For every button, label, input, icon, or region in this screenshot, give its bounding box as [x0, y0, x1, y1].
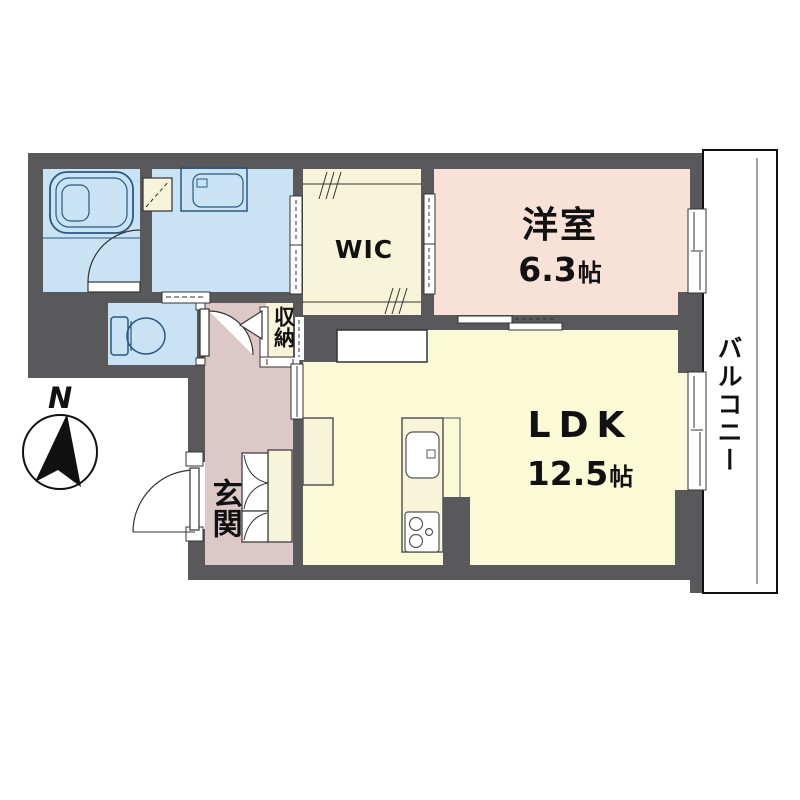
washer-space — [143, 178, 172, 211]
ldk-doorway — [291, 364, 303, 419]
entrance-label: 玄関 — [207, 478, 241, 538]
entrance-door — [133, 452, 203, 541]
washroom-wic-door — [290, 196, 302, 294]
kitchen-cabinet — [303, 418, 333, 485]
north-arrow-icon — [23, 414, 97, 489]
ldk-label: LDK — [490, 406, 670, 446]
gas-stove — [405, 512, 439, 552]
storage-label: 収納 — [271, 306, 295, 348]
western-room-size-unit: 帖 — [578, 260, 602, 287]
floor-plan: WIC 洋室 6.3帖 LDK 12.5帖 バルコニー 玄関 収納 N — [0, 0, 800, 800]
ldk-room — [303, 330, 690, 565]
washroom-sliding-door — [162, 292, 210, 303]
kitchen-sink — [406, 432, 439, 478]
kitchen-counter — [402, 418, 443, 552]
ldk-alcove — [337, 330, 427, 362]
ldk-size-unit: 帖 — [609, 464, 633, 491]
ldk-size-value: 12.5 — [527, 456, 608, 493]
western-room-window — [688, 209, 706, 293]
shoe-cabinet — [242, 450, 292, 542]
western-room-size-value: 6.3 — [518, 252, 576, 289]
balcony-label: バルコニー — [714, 335, 742, 475]
ldk-window — [688, 372, 706, 490]
western-room-size: 6.3帖 — [470, 252, 650, 289]
wic-label: WIC — [314, 236, 414, 264]
wic-western-door — [424, 194, 435, 294]
washroom — [152, 169, 293, 292]
western-room-label: 洋室 — [470, 206, 650, 246]
north-label: N — [48, 382, 72, 414]
ldk-size: 12.5帖 — [490, 456, 670, 493]
floor-plan-drawing — [0, 0, 800, 800]
